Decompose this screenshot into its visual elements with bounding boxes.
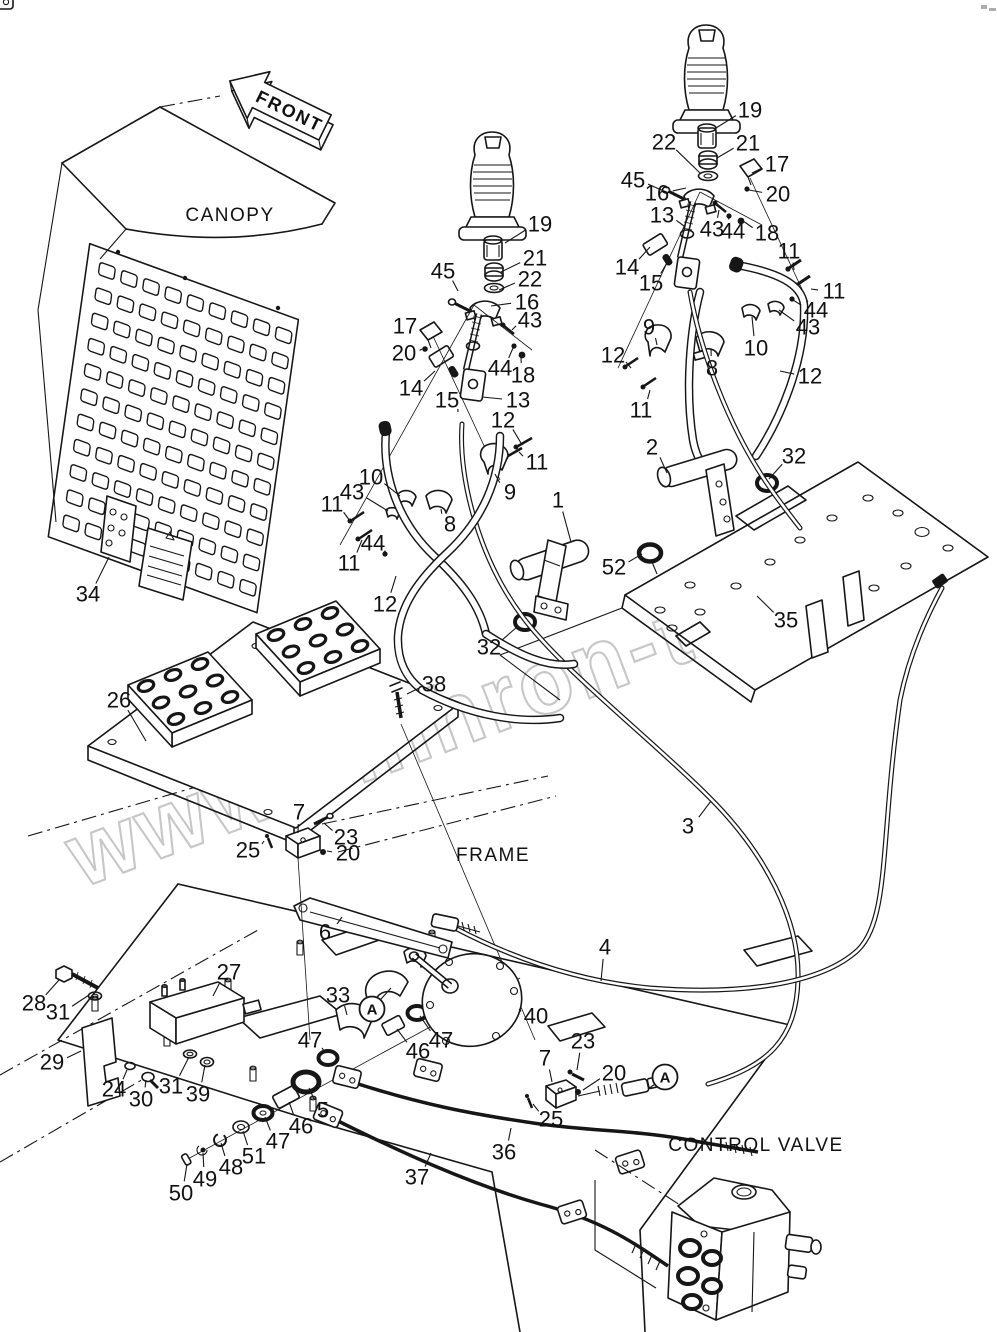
callout-number: 38: [422, 672, 446, 697]
mesh-hole: [102, 396, 119, 414]
mesh-hole: [135, 329, 152, 347]
callout-number: 36: [492, 1140, 516, 1165]
mesh-hole: [231, 310, 248, 328]
callout-number: 52: [602, 555, 626, 580]
callout-leader: [673, 188, 686, 191]
callout-number: 27: [217, 960, 241, 985]
callout-number: 12: [798, 364, 822, 389]
callout-number: 17: [765, 152, 789, 177]
callout-leader: [420, 349, 422, 350]
corner-mark: [981, 5, 996, 11]
mesh-hole: [157, 337, 174, 355]
callout-number: 23: [571, 1029, 595, 1054]
mesh-hole: [85, 522, 102, 540]
callout-number: 25: [236, 838, 260, 863]
callout-number: 33: [326, 983, 350, 1008]
mesh-hole: [217, 571, 234, 589]
callout-leader: [563, 511, 571, 542]
callout-number: 8: [706, 356, 718, 381]
callout-leader: [366, 498, 388, 511]
mesh-hole: [246, 528, 263, 546]
mesh-hole: [261, 427, 278, 445]
mesh-hole: [143, 438, 160, 456]
stopper-lower: [525, 1070, 584, 1109]
mesh-hole: [154, 362, 171, 380]
callout-number: 20: [392, 341, 416, 366]
callout-number: 14: [615, 255, 639, 280]
callout-number: 44: [488, 356, 512, 381]
callout-leader: [779, 310, 794, 321]
mesh-hole: [228, 495, 245, 513]
mesh-hole: [80, 388, 97, 406]
callout-leader: [96, 557, 109, 584]
mesh-hole: [191, 428, 208, 446]
mesh-hole: [91, 312, 108, 330]
callout-number: 47: [429, 1028, 453, 1053]
callout-number: 18: [511, 363, 535, 388]
mesh-hole: [246, 369, 263, 387]
callout-number: 6: [319, 920, 331, 945]
frame-label: FRAME: [456, 845, 530, 866]
mesh-hole: [99, 422, 116, 440]
callout-number: 46: [406, 1039, 430, 1064]
mesh-hole: [239, 419, 256, 437]
handle-1: [508, 537, 591, 620]
callout-number: 7: [539, 1046, 551, 1071]
canopy: CANOPY: [38, 96, 335, 613]
mesh-hole: [162, 471, 179, 489]
mesh-hole: [231, 470, 248, 488]
callout-number: 18: [755, 221, 779, 246]
callout-number: 13: [650, 203, 674, 228]
callout-number: 37: [405, 1165, 429, 1190]
callout-number: 12: [601, 343, 625, 368]
callout-number: 19: [738, 98, 762, 123]
callout-number: 15: [435, 388, 459, 413]
callout-number: 11: [338, 551, 361, 576]
callout-number: 47: [298, 1028, 322, 1053]
callout-number: 47: [266, 1129, 290, 1154]
callout-number: 11: [321, 492, 344, 517]
mesh-hole: [169, 420, 186, 438]
callout-number: 34: [76, 582, 100, 607]
callout-number: 15: [639, 271, 663, 296]
callout-number: 45: [621, 168, 645, 193]
callout-leader: [717, 148, 734, 158]
callout-number: 14: [399, 376, 423, 401]
mesh-hole: [183, 319, 200, 337]
callout-leader: [499, 283, 515, 290]
mesh-hole: [92, 472, 109, 490]
callout-leader: [203, 1153, 204, 1167]
callout-number: 45: [431, 259, 455, 284]
callout-leader: [67, 1051, 81, 1058]
mesh-hole: [139, 303, 156, 321]
callout-leader: [441, 509, 442, 514]
mesh-hole: [142, 278, 159, 296]
cable-4-end-fitting: [431, 913, 480, 934]
callout-leader: [699, 801, 711, 817]
callout-number: 29: [40, 1050, 64, 1075]
callout-number: 35: [774, 608, 798, 633]
mesh-hole: [198, 378, 215, 396]
callout-number: 20: [766, 182, 790, 207]
mesh-hole: [264, 402, 281, 420]
callout-number: 21: [736, 131, 760, 156]
mesh-hole: [209, 302, 226, 320]
mesh-hole: [147, 412, 164, 430]
callout-leader: [72, 995, 89, 1006]
callout-number: 10: [744, 336, 768, 361]
callout-leader: [811, 289, 818, 290]
callout-number: 40: [524, 1004, 548, 1029]
mesh-hole: [213, 436, 230, 454]
control-valve-label: CONTROL VALVE: [668, 1135, 843, 1156]
callout-number: 12: [491, 408, 515, 433]
mesh-hole: [221, 545, 238, 563]
mesh-hole: [224, 361, 241, 379]
callout-leader: [512, 326, 516, 330]
mesh-hole: [275, 326, 292, 344]
callout-number: 26: [107, 688, 131, 713]
mesh-hole: [77, 413, 94, 431]
mesh-hole: [128, 379, 145, 397]
callout-number: 30: [129, 1087, 153, 1112]
mesh-hole: [132, 354, 149, 372]
frame-studs: [92, 930, 435, 1111]
callout-leader: [424, 371, 435, 381]
callout-number: 7: [293, 800, 305, 825]
mesh-hole: [117, 295, 134, 313]
callout-number: 31: [159, 1074, 183, 1099]
mesh-hole: [194, 403, 211, 421]
callout-leader: [184, 1164, 187, 1181]
mesh-hole: [239, 579, 256, 597]
callout-number: 43: [796, 315, 820, 340]
mesh-hole: [179, 345, 196, 363]
mesh-hole: [195, 563, 212, 581]
mesh-hole: [84, 363, 101, 381]
mesh-hole: [117, 455, 134, 473]
mesh-hole: [95, 447, 112, 465]
mesh-hole: [243, 554, 260, 572]
callout-number: 11: [630, 398, 653, 423]
mesh-hole: [271, 352, 288, 370]
callout-leader: [752, 317, 754, 336]
mesh-hole: [224, 520, 241, 538]
callout-number: 22: [518, 267, 542, 292]
mesh-hole: [158, 496, 175, 514]
callout-number: 28: [22, 991, 46, 1016]
callout-leader: [46, 980, 59, 995]
callout-number: 11: [778, 239, 801, 264]
mesh-hole: [98, 262, 115, 280]
mesh-hole: [217, 411, 234, 429]
callout-number: 8: [444, 512, 456, 537]
callout-number: 9: [643, 315, 655, 340]
callout-number: 20: [336, 841, 360, 866]
callout-number: 11: [526, 450, 549, 475]
callout-leader: [583, 1079, 600, 1090]
callout-number: 20: [602, 1061, 626, 1086]
callout-leader: [549, 1070, 552, 1082]
callout-leader: [202, 1065, 205, 1082]
mesh-hole: [235, 444, 252, 462]
mesh-hole: [136, 488, 153, 506]
mesh-hole: [257, 453, 274, 471]
mesh-hole: [205, 327, 222, 345]
mesh-hole: [114, 480, 131, 498]
mesh-hole: [250, 503, 267, 521]
callout-leader: [601, 959, 603, 981]
mesh-hole: [110, 346, 127, 364]
callout-number: 5: [317, 1098, 329, 1123]
callout-number: 32: [782, 444, 806, 469]
mesh-hole: [66, 489, 83, 507]
mesh-hole: [227, 335, 244, 353]
mesh-hole: [121, 430, 138, 448]
callout-number: 32: [477, 635, 501, 660]
parts-diagram-page: www.sinhron-too.kz FRONT: [0, 0, 997, 1332]
callout-number: 43: [340, 480, 364, 505]
canopy-decals: [101, 496, 192, 600]
mesh-hole: [187, 294, 204, 312]
callout-number: 44: [361, 531, 385, 556]
circled-letter: A: [660, 1070, 671, 1087]
mesh-hole: [209, 462, 226, 480]
mesh-hole: [120, 270, 137, 288]
callout-number: 46: [289, 1114, 313, 1139]
exploded-parts-diagram: www.sinhron-too.kz FRONT: [0, 0, 997, 1332]
mesh-hole: [88, 497, 105, 515]
callout-number: 39: [186, 1082, 210, 1107]
callout-leader: [676, 220, 684, 226]
callout-number: 43: [518, 308, 542, 333]
mesh-hole: [184, 479, 201, 497]
callout-number: 51: [242, 1144, 266, 1169]
mesh-hole: [150, 387, 167, 405]
callout-leader: [676, 150, 700, 173]
mesh-hole: [63, 514, 80, 532]
callout-number: 9: [504, 480, 516, 505]
mesh-hole: [187, 454, 204, 472]
mesh-hole: [253, 318, 270, 336]
callout-leader: [344, 512, 350, 521]
callout-number: 49: [193, 1167, 217, 1192]
mesh-hole: [206, 487, 223, 505]
mesh-hole: [176, 370, 193, 388]
callout-leader: [391, 576, 396, 593]
callout-number: 4: [599, 935, 611, 960]
mesh-hole: [202, 512, 219, 530]
callout-number: 31: [46, 1000, 70, 1025]
callout-number: 2: [646, 435, 658, 460]
mesh-hole: [95, 287, 112, 305]
mesh-hole: [220, 386, 237, 404]
callout-number: 25: [539, 1107, 563, 1132]
circled-letter: A: [367, 1002, 378, 1019]
callout-leader: [519, 452, 523, 456]
mesh-hole: [165, 446, 182, 464]
callout-number: 24: [102, 1077, 126, 1102]
mesh-hole: [106, 371, 123, 389]
callout-number: 50: [169, 1181, 193, 1206]
callout-leader: [482, 397, 502, 399]
callout-number: 12: [373, 592, 397, 617]
mesh-hole: [165, 286, 182, 304]
mesh-hole: [199, 537, 216, 555]
front-arrow: FRONT: [215, 58, 342, 161]
mesh-hole: [268, 377, 285, 395]
callout-number: 19: [528, 212, 552, 237]
mesh-hole: [172, 395, 189, 413]
callout-leader: [327, 851, 332, 852]
callout-number: 48: [219, 1155, 243, 1180]
mesh-hole: [254, 478, 271, 496]
mesh-hole: [70, 464, 87, 482]
callout-number: 44: [721, 219, 745, 244]
callout-number: 22: [652, 130, 676, 155]
callout-number: 3: [682, 814, 694, 839]
plug-52: [639, 545, 661, 575]
callout-number: 1: [552, 488, 564, 513]
mesh-hole: [113, 321, 130, 339]
callout-leader: [324, 823, 333, 831]
mesh-hole: [202, 353, 219, 371]
mesh-hole: [242, 394, 259, 412]
mesh-hole: [161, 311, 178, 329]
mesh-hole: [88, 338, 105, 356]
callout-leader: [577, 1053, 580, 1070]
mesh-hole: [125, 404, 142, 422]
mesh-hole: [73, 439, 90, 457]
mesh-hole: [180, 504, 197, 522]
handle-2: [655, 447, 739, 536]
mesh-hole: [140, 463, 157, 481]
canopy-label: CANOPY: [185, 205, 274, 226]
callout-number: 17: [393, 314, 417, 339]
mesh-hole: [249, 344, 266, 362]
